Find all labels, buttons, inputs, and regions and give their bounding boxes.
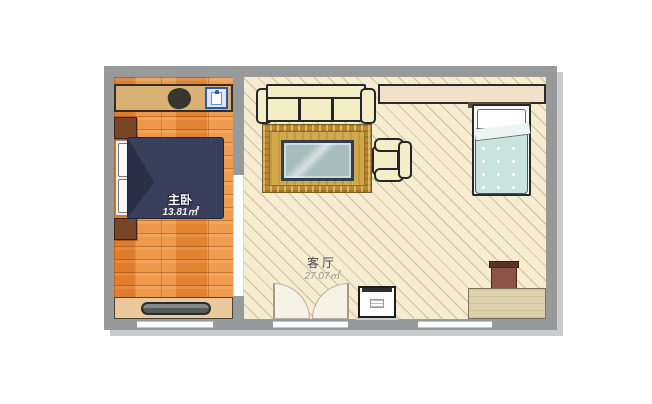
bedroom-label: 主卧 13.81㎡	[134, 194, 226, 218]
nightstand-upper	[114, 117, 137, 139]
coffee-table	[281, 140, 354, 181]
washing-machine-panel-icon	[370, 299, 384, 308]
shirt-glyph	[211, 92, 222, 105]
stool	[491, 267, 517, 289]
tv	[141, 302, 211, 315]
living-room-label: 客厅 27.07㎡	[272, 256, 372, 284]
wall-shelf	[378, 84, 546, 104]
nightstand-lower	[114, 218, 137, 240]
washing-machine-lid	[362, 288, 392, 292]
living-room-area: 27.07㎡	[272, 271, 372, 284]
floorplan: 主卧 13.81㎡ 客厅 27.07㎡	[104, 66, 557, 330]
sofa-arm-right	[360, 88, 376, 124]
wardrobe	[114, 84, 233, 112]
window-living-right	[418, 321, 492, 328]
living-room-name: 客厅	[272, 256, 372, 271]
sofa-seat	[299, 97, 333, 122]
window-bedroom	[137, 321, 213, 328]
bedroom-door-opening	[233, 175, 244, 296]
jacket-icon	[166, 86, 193, 112]
tv-cabinet	[114, 297, 233, 319]
single-bed	[472, 104, 531, 196]
shirt-icon	[205, 87, 228, 109]
armchair-back	[398, 141, 412, 179]
bedroom-name: 主卧	[134, 194, 226, 207]
sofa-seat	[266, 97, 300, 122]
window-living-left	[273, 321, 348, 328]
bedroom-area: 13.81㎡	[134, 207, 226, 218]
desk	[468, 288, 546, 319]
washing-machine	[358, 286, 396, 318]
single-bed-duvet	[475, 128, 528, 194]
